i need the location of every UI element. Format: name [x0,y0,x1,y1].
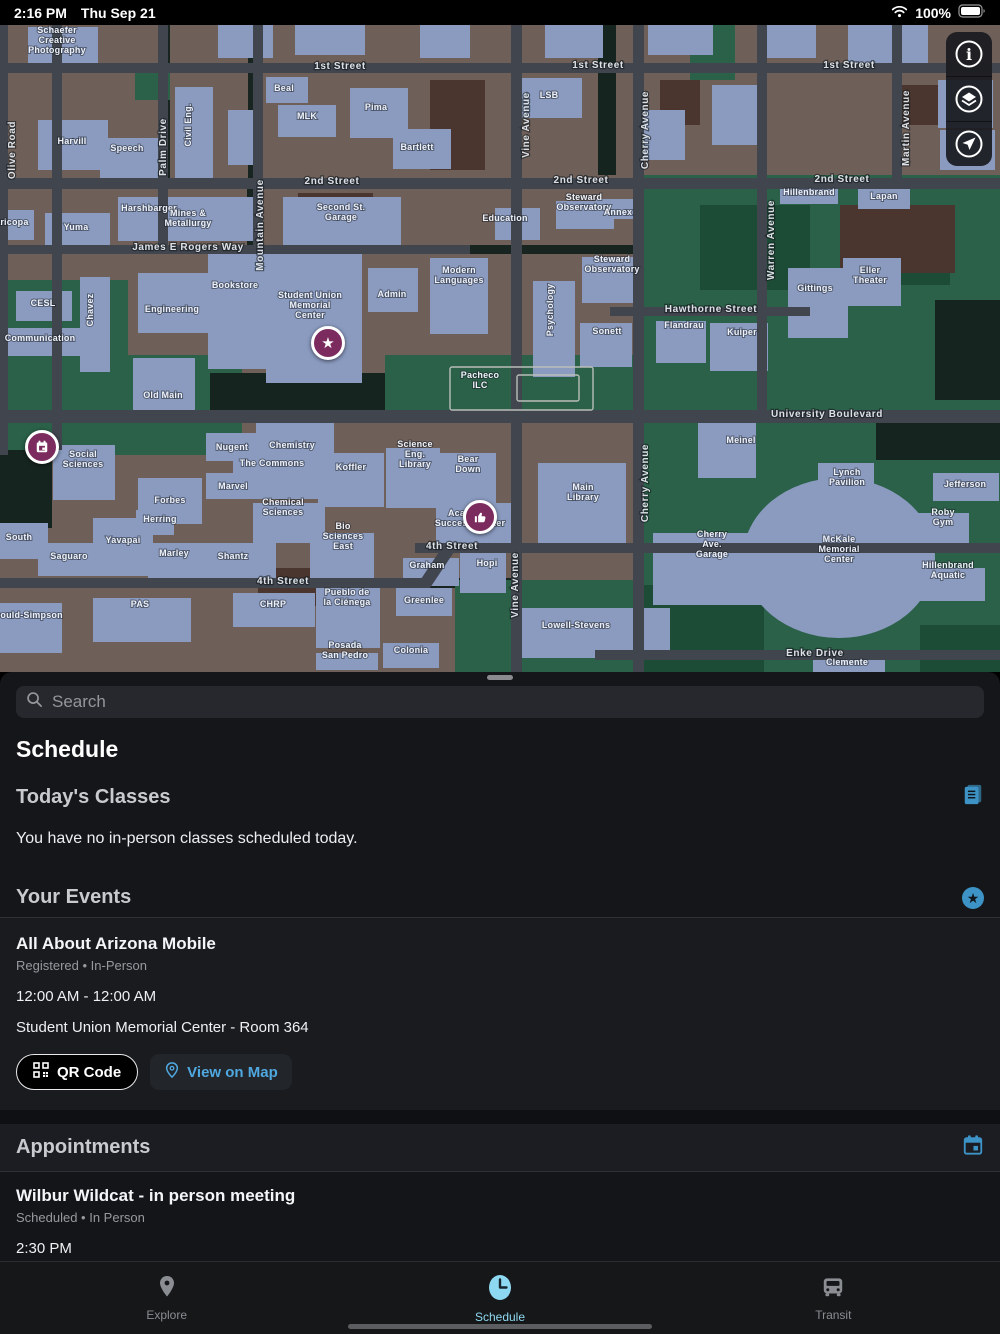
event-status: Registered • In-Person [16,958,984,973]
status-bar: 2:16 PM Thu Sep 21 100% [0,0,1000,25]
map-building [545,25,603,58]
page-title: Schedule [16,736,984,763]
building-label: Yavapai [106,535,141,545]
building-label: Harvill [58,136,87,146]
map-building [848,25,928,63]
map-building [218,25,273,58]
building-label: Nugent [216,442,248,452]
building-label: LynchPavilion [829,467,865,487]
building-label: Saguaro [50,551,88,561]
building-label: South [6,532,33,542]
schedule-sheet: Schedule Today's Classes You have no in-… [0,672,1000,1334]
building-label: CESL [31,298,56,308]
explore-pin-icon [155,1274,179,1305]
map-info-button[interactable]: i [946,32,992,77]
wifi-icon [891,5,908,21]
building-label: Jefferson [944,479,986,489]
map-layers-button[interactable] [946,77,992,122]
street-label: 2nd Street [554,175,609,186]
street-label: 2nd Street [815,174,870,185]
building-label: The Commons [240,458,305,468]
building-label: MLK [297,111,317,121]
street-label: Cherry Avenue [640,444,651,522]
schedule-clock-icon [487,1274,513,1307]
building-label: Hopi [477,558,498,568]
star-icon: ★ [321,336,334,351]
campus-map[interactable]: 1st Street1st Street1st Street2nd Street… [0,25,1000,672]
building-label: Civil Eng. [183,103,193,146]
street-label: University Boulevard [771,409,883,420]
tab-explore[interactable]: Explore [0,1262,333,1334]
building-label: McKaleMemorialCenter [818,534,859,564]
building-label: Harshbarger [121,203,177,213]
street-label: Vine Avenue [521,92,532,158]
building-label: Lapan [870,191,898,201]
map-park [920,625,1000,672]
building-label: Bookstore [212,280,258,290]
appointments-header: Appointments [16,1136,150,1159]
event-card[interactable]: All About Arizona Mobile Registered • In… [0,918,1000,1110]
building-label: Sonett [592,326,621,336]
tab-explore-label: Explore [146,1308,187,1322]
todays-classes-header-row: Today's Classes [0,783,1000,812]
your-events-header-row: Your Events ★ [0,886,1000,918]
map-building [278,105,336,137]
events-star-icon[interactable]: ★ [962,887,984,909]
building-label: BearDown [455,454,480,474]
qr-button-label: QR Code [57,1064,121,1081]
map-building [712,85,757,145]
building-label: Yuma [64,222,90,232]
map-controls: i [946,32,992,166]
building-label: Education [482,213,527,223]
event-time: 12:00 AM - 12:00 AM [16,988,984,1005]
battery-icon [958,4,986,21]
appointments-header-row: Appointments [0,1124,1000,1172]
calendar-icon [35,440,49,454]
building-label: CHRP [260,599,286,609]
building-label: Koffler [336,462,367,472]
building-label: Old Main [143,390,183,400]
building-label: Marley [159,548,189,558]
building-label: Shantz [218,551,249,561]
building-label: Admin [378,289,407,299]
building-label: Chavez [85,293,95,326]
tab-transit[interactable]: Transit [667,1262,1000,1334]
building-label: Annex [604,207,633,217]
building-label: Communication [5,333,76,343]
building-label: Forbes [154,495,185,505]
building-label: Flandrau [664,320,704,330]
street-label: James E Rogers Way [132,242,244,253]
event-location: Student Union Memorial Center - Room 364 [16,1019,984,1036]
svg-text:i: i [966,45,972,64]
building-label: Kuiper [727,327,757,337]
battery-percent: 100% [915,5,951,21]
building-label: Lowell-Stevens [542,620,610,630]
map-building [648,25,713,55]
building-label: Greenlee [404,595,444,605]
street-label: Martin Avenue [901,90,912,166]
appointment-card[interactable]: Wilbur Wildcat - in person meeting Sched… [0,1172,1000,1271]
building-label: Engineering [145,304,199,314]
search-input[interactable] [50,691,974,713]
building-label: RobyGym [931,507,954,527]
map-building [138,273,210,333]
building-label: Clemente [826,657,868,667]
view-on-map-button[interactable]: View on Map [150,1054,292,1090]
building-label: Bartlett [400,142,433,152]
building-label: Marvel [218,481,248,491]
map-marker-star[interactable]: ★ [311,326,345,360]
building-label: Gittings [797,283,833,293]
home-indicator[interactable] [348,1324,652,1329]
street-label: 4th Street [257,576,309,587]
street-label: Warren Avenue [766,200,777,280]
map-pin-icon [164,1061,180,1083]
search-icon [26,691,43,713]
building-label: ChemicalSciences [262,497,304,517]
todays-classes-header: Today's Classes [16,786,170,809]
building-label: Pueblo dela Ciénega [323,587,371,607]
building-label: Graham [409,560,444,570]
map-road [0,25,8,455]
your-events-header: Your Events [16,886,131,909]
map-button-label: View on Map [187,1064,278,1081]
street-label: 1st Street [823,60,875,71]
map-building [698,423,756,478]
street-label: Hawthorne Street [665,304,757,315]
building-label: PAS [131,599,149,609]
thumbs-up-icon [473,510,488,525]
tab-schedule-label: Schedule [475,1310,525,1324]
map-building [788,268,848,338]
appointment-title: Wilbur Wildcat - in person meeting [16,1186,984,1206]
map-canvas[interactable]: 1st Street1st Street1st Street2nd Street… [0,25,1000,672]
street-label: 1st Street [314,61,366,72]
street-label: 2nd Street [305,176,360,187]
street-label: Palm Drive [158,118,169,176]
map-block [767,73,892,178]
qr-icon [33,1062,49,1082]
appointments-calendar-icon[interactable] [962,1134,984,1161]
street-label: Olive Road [7,121,18,179]
map-marker-thumbs-up[interactable] [463,500,497,534]
building-label: Herring [143,514,176,524]
map-building [175,87,213,182]
map-road [52,25,62,450]
classes-icon[interactable] [962,783,984,812]
building-label: Mines &Metallurgy [164,208,211,228]
map-block [935,300,1000,400]
building-label: Meinel [726,435,755,445]
search-bar[interactable] [16,686,984,718]
appointment-status: Scheduled • In Person [16,1210,984,1225]
street-label: Cherry Avenue [640,91,651,169]
no-classes-message: You have no in-person classes scheduled … [16,830,984,848]
section-gap [0,1110,1000,1124]
street-label: 4th Street [426,541,478,552]
tab-transit-label: Transit [815,1308,851,1322]
street-label: Mountain Avenue [255,179,266,271]
building-label: Chemistry [269,440,315,450]
building-label: Hillenbrand [783,187,835,197]
building-label: Speech [110,143,143,153]
street-label: 1st Street [572,60,624,71]
map-locate-button[interactable] [946,122,992,166]
event-title: All About Arizona Mobile [16,934,984,954]
map-building [420,25,470,58]
appointment-time: 2:30 PM [16,1240,984,1257]
street-label: Vine Avenue [510,552,521,618]
building-label: Gould-Simpson [0,610,63,620]
building-label: Colonia [394,645,429,655]
qr-code-button[interactable]: QR Code [16,1054,138,1090]
map-building [538,463,626,543]
status-time: 2:16 PM [14,5,67,21]
transit-car-icon [820,1274,846,1305]
map-building [295,25,365,55]
building-label: Beal [274,83,294,93]
status-date: Thu Sep 21 [81,5,156,21]
sheet-grab-handle[interactable] [487,675,513,680]
map-marker-calendar[interactable] [25,430,59,464]
building-label: PosadaSan Pedro [322,640,369,660]
building-label: Maricopa [0,217,29,227]
building-label: LSB [540,90,559,100]
building-label: Psychology [545,284,555,337]
building-label: Pima [365,102,388,112]
